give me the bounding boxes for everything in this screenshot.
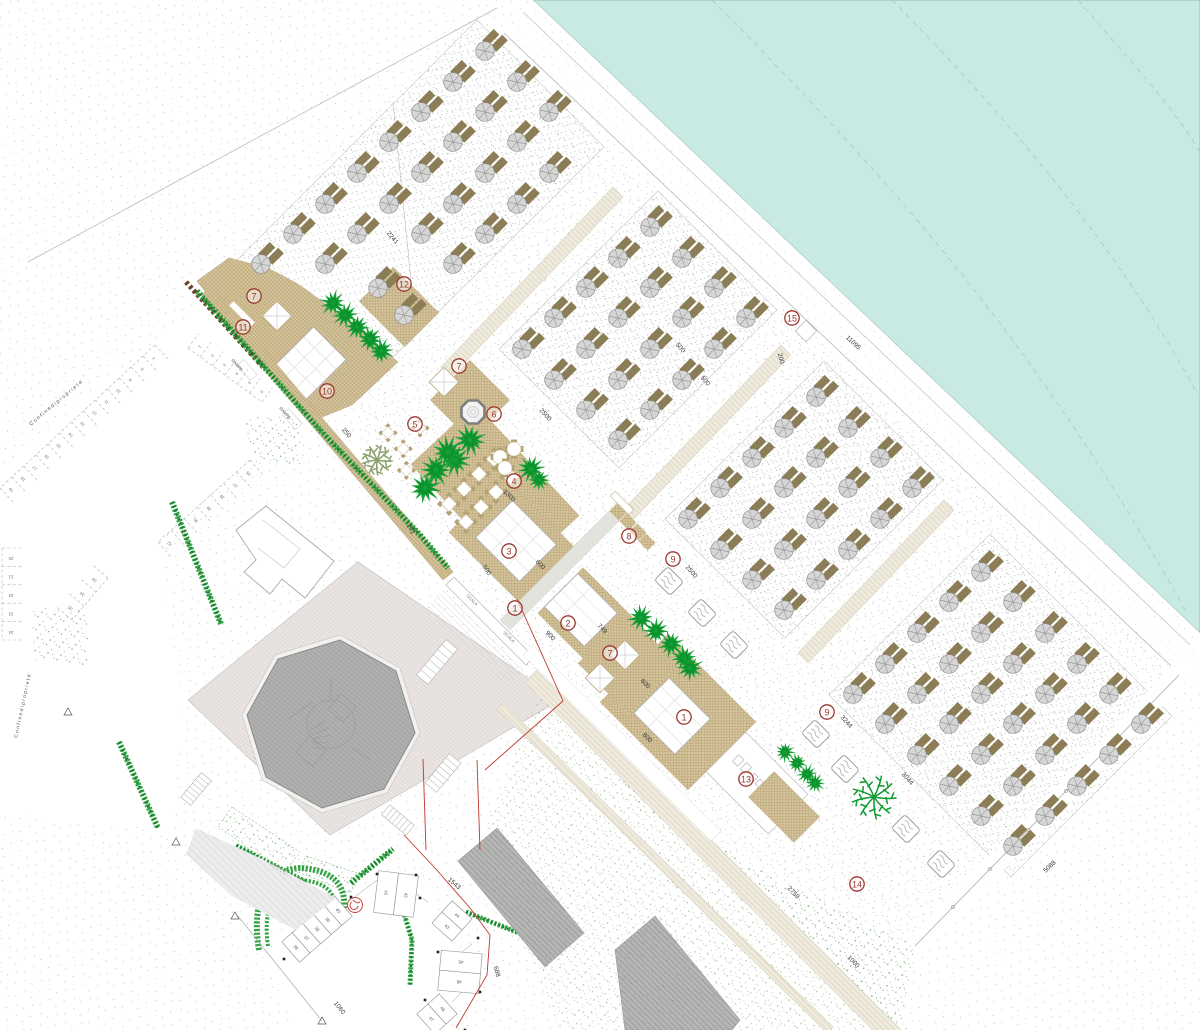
- svg-text:7: 7: [251, 291, 256, 301]
- svg-text:11: 11: [238, 322, 247, 332]
- svg-text:1: 1: [512, 603, 517, 613]
- svg-text:22: 22: [8, 593, 13, 598]
- svg-text:6: 6: [491, 409, 496, 419]
- svg-text:14: 14: [852, 879, 862, 889]
- svg-text:12: 12: [399, 279, 409, 289]
- svg-text:24: 24: [8, 630, 13, 635]
- svg-text:1: 1: [681, 712, 686, 722]
- svg-text:4: 4: [511, 476, 516, 486]
- svg-text:7: 7: [456, 361, 461, 371]
- svg-text:7: 7: [607, 648, 612, 658]
- svg-text:15: 15: [787, 313, 797, 323]
- svg-text:23: 23: [8, 611, 13, 616]
- svg-text:13: 13: [741, 774, 751, 784]
- svg-text:9: 9: [670, 554, 675, 564]
- svg-text:2: 2: [565, 618, 570, 628]
- svg-text:5: 5: [412, 419, 417, 429]
- svg-text:8: 8: [626, 531, 631, 541]
- svg-text:21: 21: [8, 575, 13, 580]
- svg-text:20: 20: [8, 556, 13, 561]
- svg-text:9: 9: [824, 707, 829, 717]
- svg-text:10: 10: [322, 386, 332, 396]
- svg-text:3: 3: [506, 546, 511, 556]
